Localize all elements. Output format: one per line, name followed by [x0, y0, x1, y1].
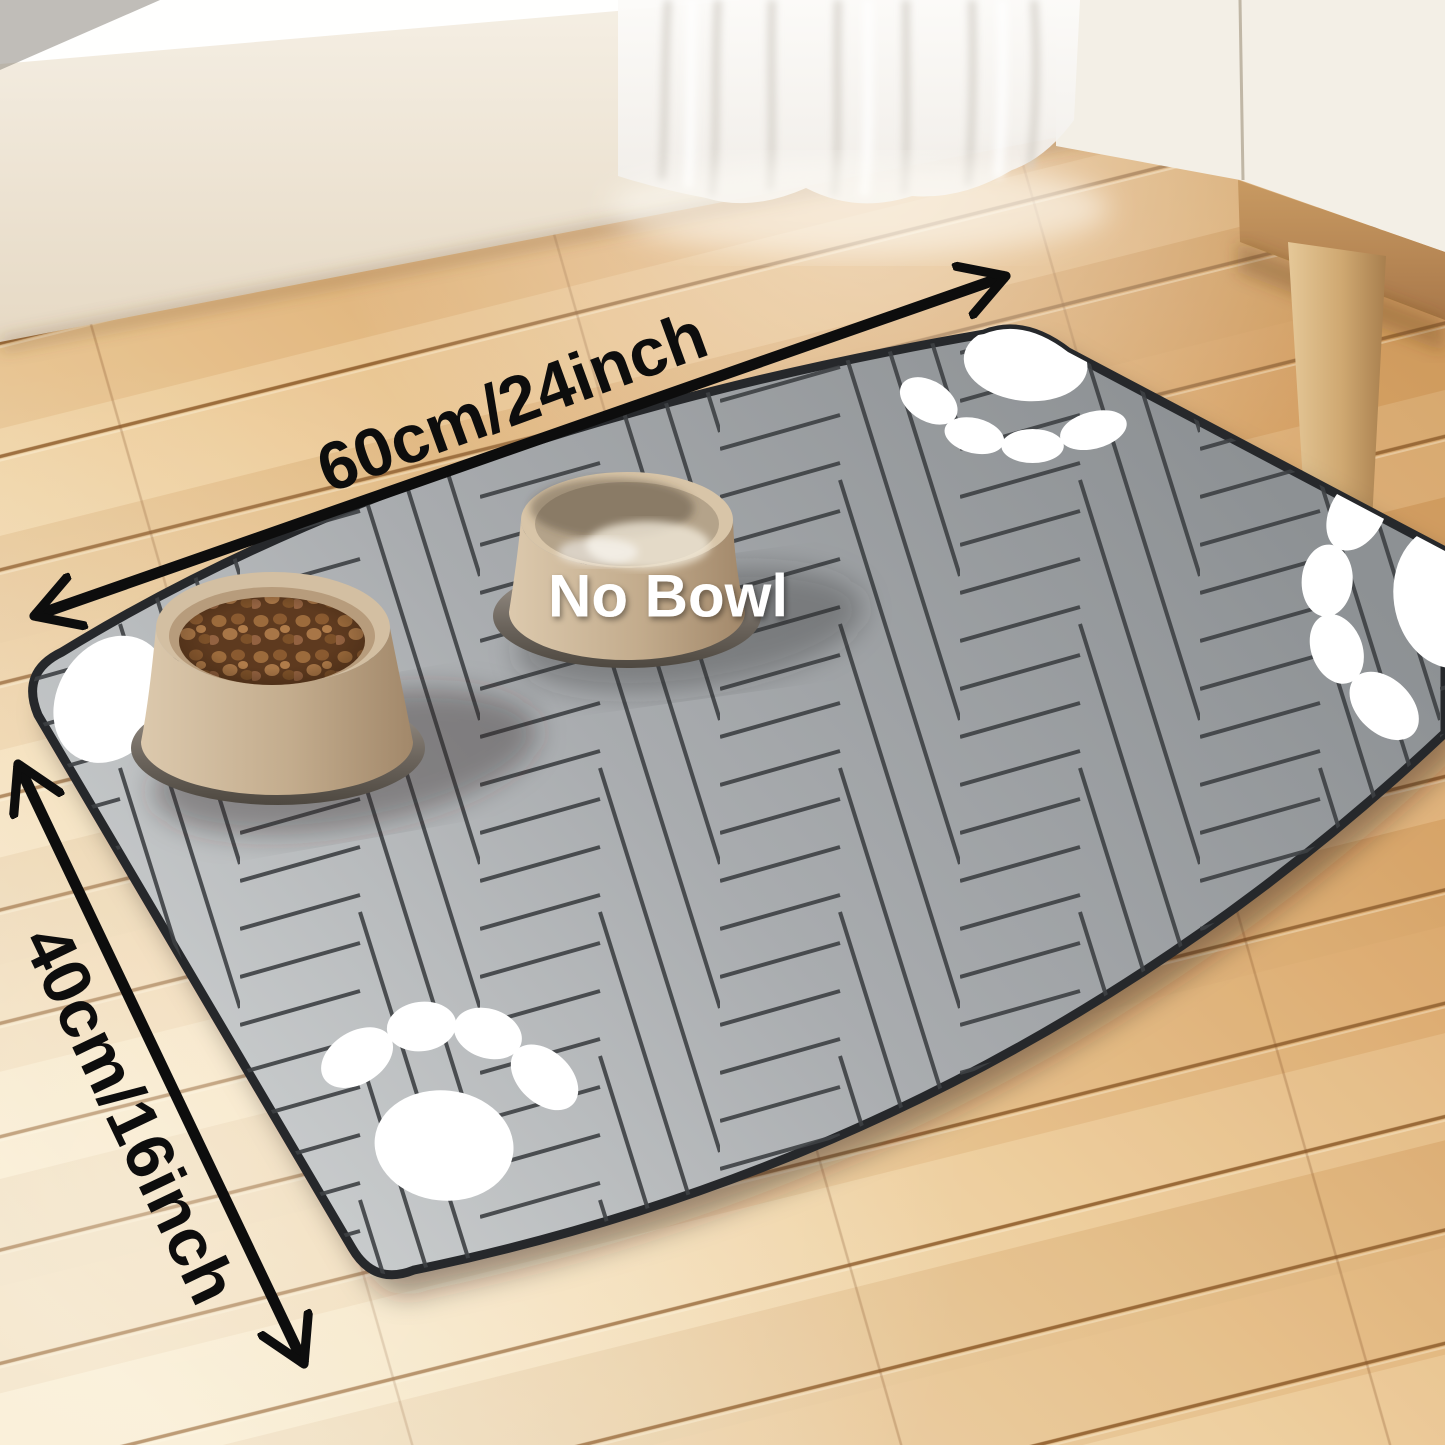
scene: No Bowl 60cm/24inch 40cm/16inch — [0, 0, 1445, 1445]
product-photo-pet-feeding-mat: No Bowl 60cm/24inch 40cm/16inch — [0, 0, 1445, 1445]
no-bowl-label: No Bowl — [548, 563, 788, 630]
curtain — [610, 0, 1110, 256]
kibble-shade — [179, 597, 365, 685]
curtain-floor-glow — [610, 160, 1110, 256]
